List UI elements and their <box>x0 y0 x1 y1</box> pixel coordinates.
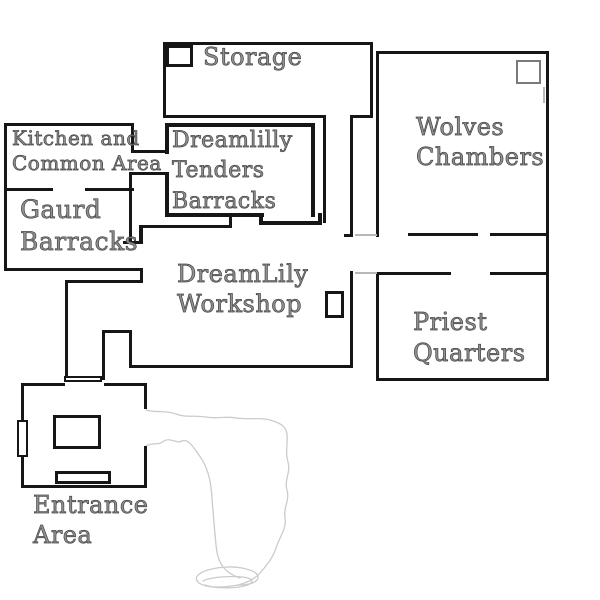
label-dreamlilly-tenders-barracks: Dreamlilly Tenders Barracks <box>172 126 293 217</box>
wall-passage-east <box>350 115 353 237</box>
entrance-side-door <box>17 420 28 457</box>
wall-hall-inner-top <box>102 330 132 333</box>
wolves-crate <box>516 60 541 84</box>
wall-priest-top-a <box>376 272 451 275</box>
wall-passage-west <box>323 115 326 223</box>
wall-workshop-right <box>350 271 353 368</box>
door-mark-passage-north <box>355 234 377 236</box>
wall-storage-bottom-jog <box>350 115 373 118</box>
label-entrance-area: Entrance Area <box>33 490 149 551</box>
label-gaurd-barracks: Gaurd Barracks <box>20 194 138 258</box>
wall-wolves-bottom-a <box>408 233 478 236</box>
storage-crate <box>166 45 193 67</box>
wall-corridor-top <box>140 225 232 228</box>
label-dreamlily-workshop: DreamLily Workshop <box>177 259 308 320</box>
wall-alcove-bottom <box>259 221 322 225</box>
wall-kitchen-bottom-b <box>85 188 134 191</box>
wall-priest-bottom <box>376 378 549 381</box>
wall-entrance-right-b <box>144 446 147 488</box>
wall-entrance-top-a <box>21 383 65 386</box>
door-mark-wolves <box>543 87 545 103</box>
floor-plan: Storage Wolves Chambers Kitchen and Comm… <box>0 0 600 600</box>
wall-storage-right <box>370 42 373 118</box>
wall-entrance-top-b <box>104 383 147 386</box>
wall-wolves-left <box>376 51 379 237</box>
workshop-crate <box>325 291 344 318</box>
wall-east-outer <box>546 51 549 381</box>
wall-hall-west <box>65 280 68 380</box>
wall-entrance-bottom <box>21 485 147 488</box>
wall-kitchen-bottom-a <box>4 188 53 191</box>
label-wolves-chambers: Wolves Chambers <box>416 112 544 173</box>
wall-priest-left <box>376 272 379 381</box>
wall-wolves-top <box>376 51 549 54</box>
wall-barracks-right <box>311 123 315 217</box>
label-priest-quarters: Priest Quarters <box>413 307 526 369</box>
wall-gaurd-bottom <box>4 268 143 271</box>
wall-wolves-bottom-b <box>490 233 549 236</box>
door-mark-passage-south <box>355 272 377 274</box>
label-storage: Storage <box>203 42 302 72</box>
wall-workshop-sw <box>129 330 132 368</box>
wall-barracks-left-b <box>165 172 169 217</box>
wall-hall-inner <box>102 330 105 380</box>
wall-storage-bottom <box>163 115 325 118</box>
wall-passage-foot <box>344 234 353 237</box>
wall-west-outer <box>4 123 7 271</box>
wall-hall-cap <box>140 268 143 283</box>
entrance-threshold <box>64 376 102 382</box>
wall-priest-top-b <box>490 272 549 275</box>
entrance-rug <box>55 471 111 484</box>
wall-entrance-right-a <box>144 383 147 409</box>
wall-workshop-nw <box>139 225 143 243</box>
wall-hall-south <box>65 280 143 283</box>
label-kitchen-common: Kitchen and Common Area <box>12 126 162 177</box>
wall-workshop-bottom <box>129 365 353 368</box>
entrance-table <box>53 415 101 449</box>
